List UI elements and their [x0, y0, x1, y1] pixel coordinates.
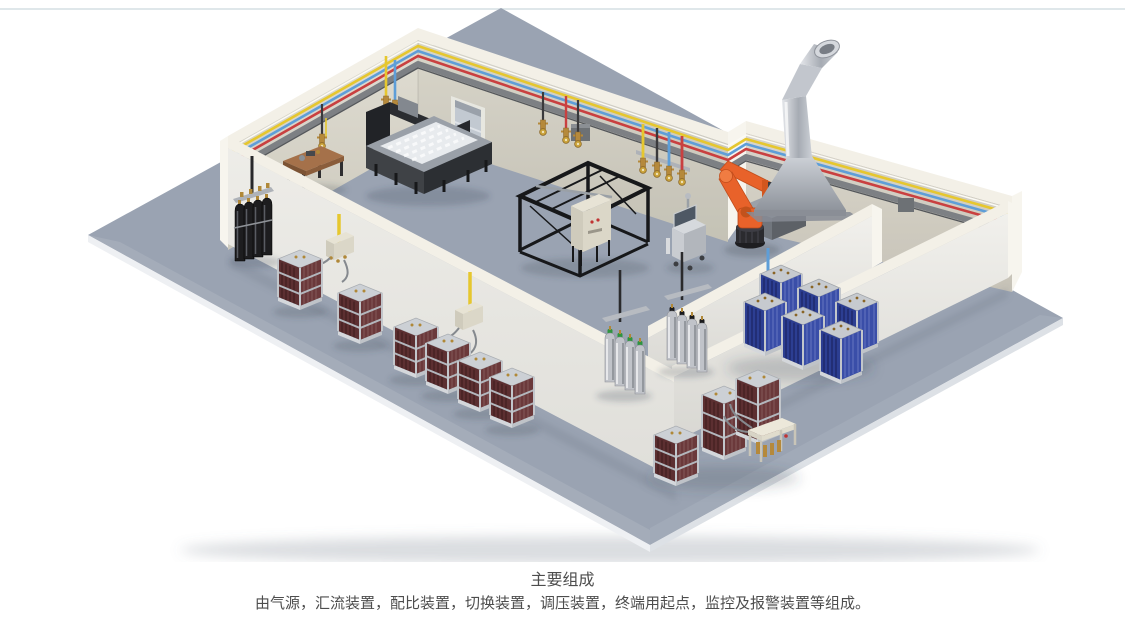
page: 主要组成 由气源，汇流装置，配比装置，切换装置，调压装置，终端用起点，监控及报警… [0, 0, 1125, 638]
maroon-rack [278, 250, 322, 310]
factory-illustration [0, 0, 1125, 562]
extension-wall-box [898, 198, 914, 212]
caption: 主要组成 由气源，汇流装置，配比装置，切换装置，调压装置，终端用起点，监控及报警… [0, 570, 1125, 615]
scene-wrap [0, 0, 1125, 562]
blue-bundle [820, 321, 862, 384]
caption-title: 主要组成 [0, 570, 1125, 592]
silver-cylinder-green [635, 338, 645, 394]
silver-cylinder-green [615, 330, 625, 386]
maroon-rack [490, 368, 534, 428]
blue-bundle [782, 307, 824, 370]
maroon-rack [654, 426, 698, 486]
silver-cylinder-black [697, 316, 707, 372]
silver-cylinder-black [677, 308, 687, 364]
blue-bundle [744, 293, 786, 356]
silver-cylinder-black [667, 304, 677, 360]
duct-elbow [782, 64, 822, 100]
caption-description: 由气源，汇流装置，配比装置，切换装置，调压装置，终端用起点，监控及报警装置等组成… [0, 593, 1125, 615]
silver-cylinder-green [625, 334, 635, 390]
silver-cylinder-green [605, 326, 615, 382]
silver-cylinder-black [687, 312, 697, 368]
maroon-rack [338, 284, 382, 344]
